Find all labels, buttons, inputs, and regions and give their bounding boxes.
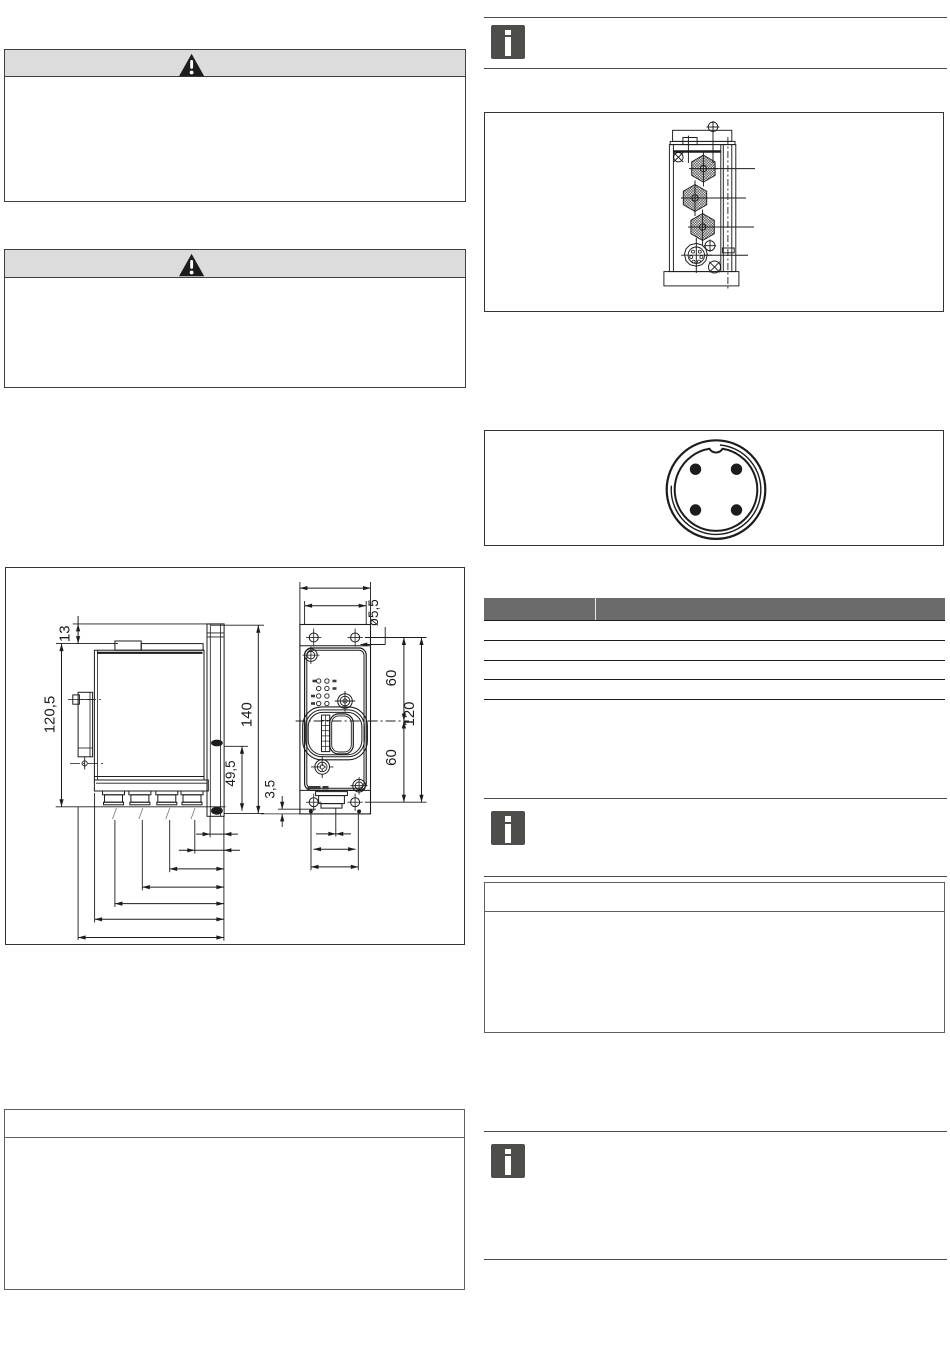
svg-text:120,5: 120,5 [41,696,58,734]
svg-text:3,5: 3,5 [262,780,277,799]
svg-text:60: 60 [383,749,400,766]
svg-text:120: 120 [401,701,418,726]
svg-text:13: 13 [56,625,73,642]
svg-text:60: 60 [383,670,400,687]
svg-text:49,5: 49,5 [222,760,237,786]
svg-text:ø5,5: ø5,5 [365,599,380,626]
svg-text:140: 140 [238,702,255,727]
